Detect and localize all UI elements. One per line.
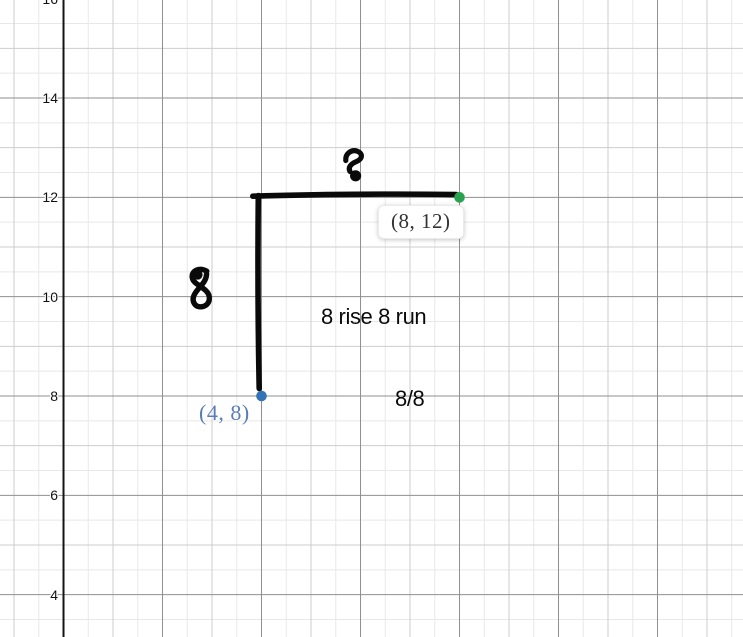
point-4-8[interactable] [256,391,267,402]
ink-rise-stroke-vertical [258,196,259,389]
y-axis-label-16: 16 [0,0,58,8]
y-axis-label-8: 8 [0,387,58,405]
point-8-12[interactable] [454,192,465,203]
ink-handwritten-8-run [346,151,362,172]
y-axis-label-6: 6 [0,486,58,504]
y-axis-label-4: 4 [0,586,58,604]
ink-handwritten-8-rise-blob [193,270,203,280]
ink-handwritten-8-run-blob [350,170,361,181]
y-axis-label-12: 12 [0,188,58,206]
annotation-slope-fraction[interactable]: 8/8 [395,386,424,412]
point-label-8-12[interactable]: (8, 12) [378,205,464,239]
ink-annotations [192,151,456,389]
ink-run-stroke-horizontal [253,194,456,196]
y-axis-label-10: 10 [0,288,58,306]
graph-canvas[interactable]: 16141210864 (4, 8) (8, 12) 8 rise 8 run … [0,0,743,637]
point-label-4-8[interactable]: (4, 8) [199,400,250,426]
y-axis-label-14: 14 [0,89,58,107]
annotation-rise-run[interactable]: 8 rise 8 run [321,304,426,330]
